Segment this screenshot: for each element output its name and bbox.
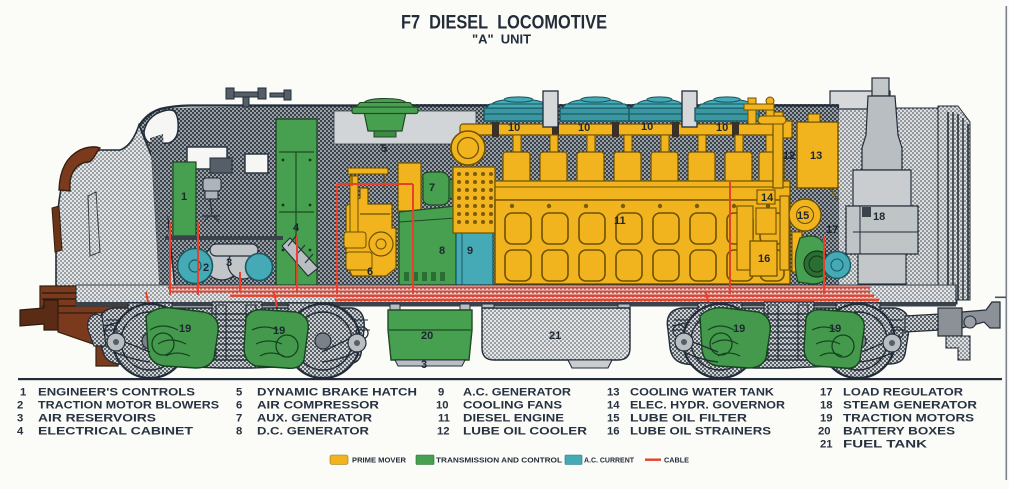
svg-text:19: 19 xyxy=(179,323,191,335)
svg-text:LOAD REGULATOR: LOAD REGULATOR xyxy=(843,387,963,399)
svg-text:BATTERY BOXES: BATTERY BOXES xyxy=(843,426,956,438)
svg-text:18: 18 xyxy=(873,211,885,223)
svg-text:COOLING WATER TANK: COOLING WATER TANK xyxy=(630,387,775,399)
svg-text:1: 1 xyxy=(20,387,26,399)
svg-text:19: 19 xyxy=(733,323,745,335)
svg-text:AIR COMPRESSOR: AIR COMPRESSOR xyxy=(257,400,379,412)
svg-text:19: 19 xyxy=(829,323,841,335)
svg-text:7: 7 xyxy=(429,182,435,194)
svg-text:10: 10 xyxy=(436,400,449,412)
svg-text:DYNAMIC BRAKE HATCH: DYNAMIC BRAKE HATCH xyxy=(257,387,417,399)
svg-text:2: 2 xyxy=(17,400,23,412)
svg-text:5: 5 xyxy=(381,143,387,155)
svg-text:ENGINEER'S CONTROLS: ENGINEER'S CONTROLS xyxy=(38,387,196,399)
svg-text:ELEC. HYDR. GOVERNOR: ELEC. HYDR. GOVERNOR xyxy=(630,400,785,412)
svg-text:18: 18 xyxy=(820,400,833,412)
svg-text:10: 10 xyxy=(716,122,728,134)
svg-text:TRACTION MOTORS: TRACTION MOTORS xyxy=(843,413,975,425)
svg-text:TRANSMISSION AND CONTROL: TRANSMISSION AND CONTROL xyxy=(436,456,562,465)
svg-text:10: 10 xyxy=(578,122,590,134)
svg-text:4: 4 xyxy=(17,426,24,438)
svg-text:FUEL TANK: FUEL TANK xyxy=(843,439,928,451)
svg-text:9: 9 xyxy=(438,387,444,399)
svg-text:21: 21 xyxy=(820,439,833,451)
svg-text:8: 8 xyxy=(236,426,242,438)
svg-text:4: 4 xyxy=(293,222,300,234)
svg-text:6: 6 xyxy=(367,266,373,278)
svg-text:LUBE OIL FILTER: LUBE OIL FILTER xyxy=(630,413,747,425)
svg-text:19: 19 xyxy=(273,325,285,337)
svg-text:6: 6 xyxy=(236,400,242,412)
svg-text:3: 3 xyxy=(17,413,23,425)
svg-text:ELECTRICAL CABINET: ELECTRICAL CABINET xyxy=(38,426,193,438)
svg-text:15: 15 xyxy=(797,210,809,222)
svg-text:AIR RESERVOIRS: AIR RESERVOIRS xyxy=(38,413,157,425)
svg-text:COOLING FANS: COOLING FANS xyxy=(463,400,563,412)
svg-text:9: 9 xyxy=(467,245,473,257)
svg-text:17: 17 xyxy=(820,387,833,399)
svg-text:20: 20 xyxy=(421,330,433,342)
svg-text:D.C. GENERATOR: D.C. GENERATOR xyxy=(257,426,369,438)
svg-text:8: 8 xyxy=(439,245,445,257)
svg-text:11: 11 xyxy=(614,215,626,227)
svg-text:AUX. GENERATOR: AUX. GENERATOR xyxy=(257,413,372,425)
svg-text:13: 13 xyxy=(810,150,822,162)
svg-text:LUBE OIL STRAINERS: LUBE OIL STRAINERS xyxy=(630,426,772,438)
svg-text:11: 11 xyxy=(438,413,450,425)
svg-text:TRACTION MOTOR BLOWERS: TRACTION MOTOR BLOWERS xyxy=(38,400,220,412)
svg-text:20: 20 xyxy=(818,426,831,438)
svg-text:F7 DIESEL LOCOMOTIVE: F7 DIESEL LOCOMOTIVE xyxy=(401,13,607,34)
svg-text:PRIME MOVER: PRIME MOVER xyxy=(352,456,406,465)
svg-text:12: 12 xyxy=(437,426,450,438)
svg-text:LUBE OIL COOLER: LUBE OIL COOLER xyxy=(463,426,587,438)
svg-text:16: 16 xyxy=(607,426,620,438)
svg-text:10: 10 xyxy=(641,121,653,133)
svg-text:STEAM GENERATOR: STEAM GENERATOR xyxy=(843,400,977,412)
svg-text:A.C. GENERATOR: A.C. GENERATOR xyxy=(463,387,571,399)
svg-text:13: 13 xyxy=(607,387,620,399)
svg-text:CABLE: CABLE xyxy=(664,456,689,465)
svg-text:21: 21 xyxy=(549,330,561,342)
svg-text:A.C. CURRENT: A.C. CURRENT xyxy=(584,456,634,465)
svg-text:1: 1 xyxy=(181,191,187,203)
svg-text:3: 3 xyxy=(421,359,427,371)
svg-text:"A" UNIT: "A" UNIT xyxy=(472,32,531,47)
svg-text:16: 16 xyxy=(758,253,770,265)
svg-text:14: 14 xyxy=(761,192,774,204)
svg-text:5: 5 xyxy=(236,387,242,399)
svg-text:10: 10 xyxy=(508,122,520,134)
svg-text:15: 15 xyxy=(607,413,620,425)
svg-text:3: 3 xyxy=(226,257,232,269)
svg-text:2: 2 xyxy=(203,262,209,274)
svg-text:19: 19 xyxy=(820,413,833,425)
svg-text:7: 7 xyxy=(236,413,242,425)
svg-text:14: 14 xyxy=(607,400,620,412)
svg-text:DIESEL ENGINE: DIESEL ENGINE xyxy=(463,413,565,425)
svg-text:17: 17 xyxy=(826,224,838,236)
svg-text:12: 12 xyxy=(783,150,795,162)
